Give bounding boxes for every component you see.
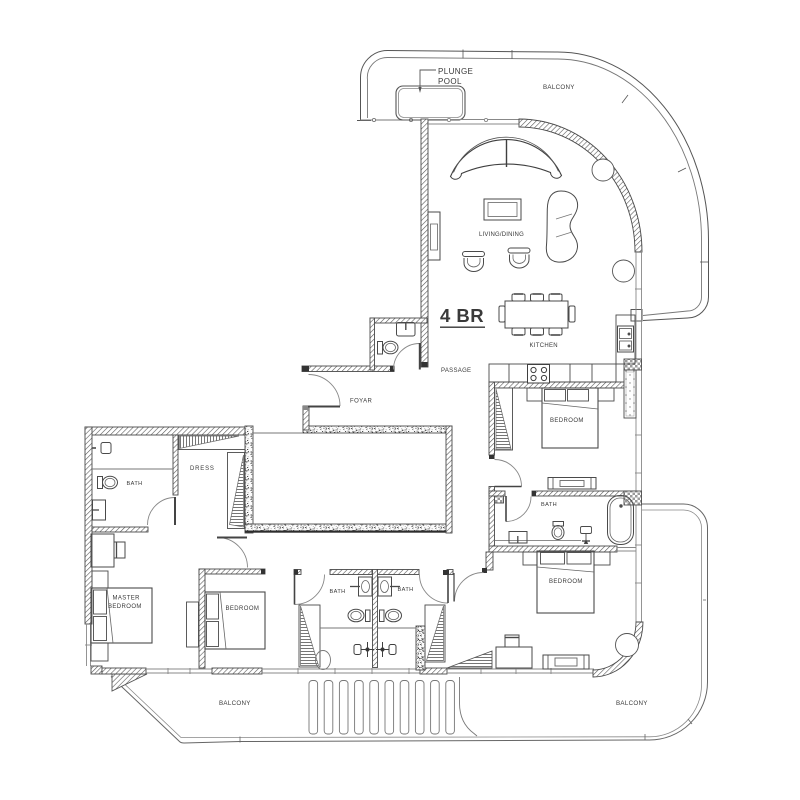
svg-text:BATH: BATH <box>541 502 557 508</box>
svg-text:BALCONY: BALCONY <box>219 700 251 707</box>
svg-text:BATH: BATH <box>398 587 414 593</box>
svg-text:MASTER: MASTER <box>113 596 141 602</box>
svg-text:PASSAGE: PASSAGE <box>441 368 471 374</box>
svg-text:BEDROOM: BEDROOM <box>108 604 142 610</box>
svg-text:BEDROOM: BEDROOM <box>226 606 260 612</box>
svg-text:4 BR: 4 BR <box>440 305 484 326</box>
svg-text:BEDROOM: BEDROOM <box>550 418 584 424</box>
svg-text:BEDROOM: BEDROOM <box>549 579 583 585</box>
svg-text:BALCONY: BALCONY <box>616 700 648 707</box>
svg-text:LIVING/DINING: LIVING/DINING <box>479 232 524 238</box>
svg-text:DRESS: DRESS <box>190 466 215 472</box>
svg-text:PLUNGE: PLUNGE <box>438 67 473 76</box>
svg-text:BATH: BATH <box>330 589 346 595</box>
svg-text:KITCHEN: KITCHEN <box>530 343 558 349</box>
svg-text:BALCONY: BALCONY <box>543 84 575 91</box>
svg-text:POOL: POOL <box>438 77 462 86</box>
svg-text:FOYAR: FOYAR <box>350 399 372 405</box>
svg-text:BATH: BATH <box>127 481 143 487</box>
